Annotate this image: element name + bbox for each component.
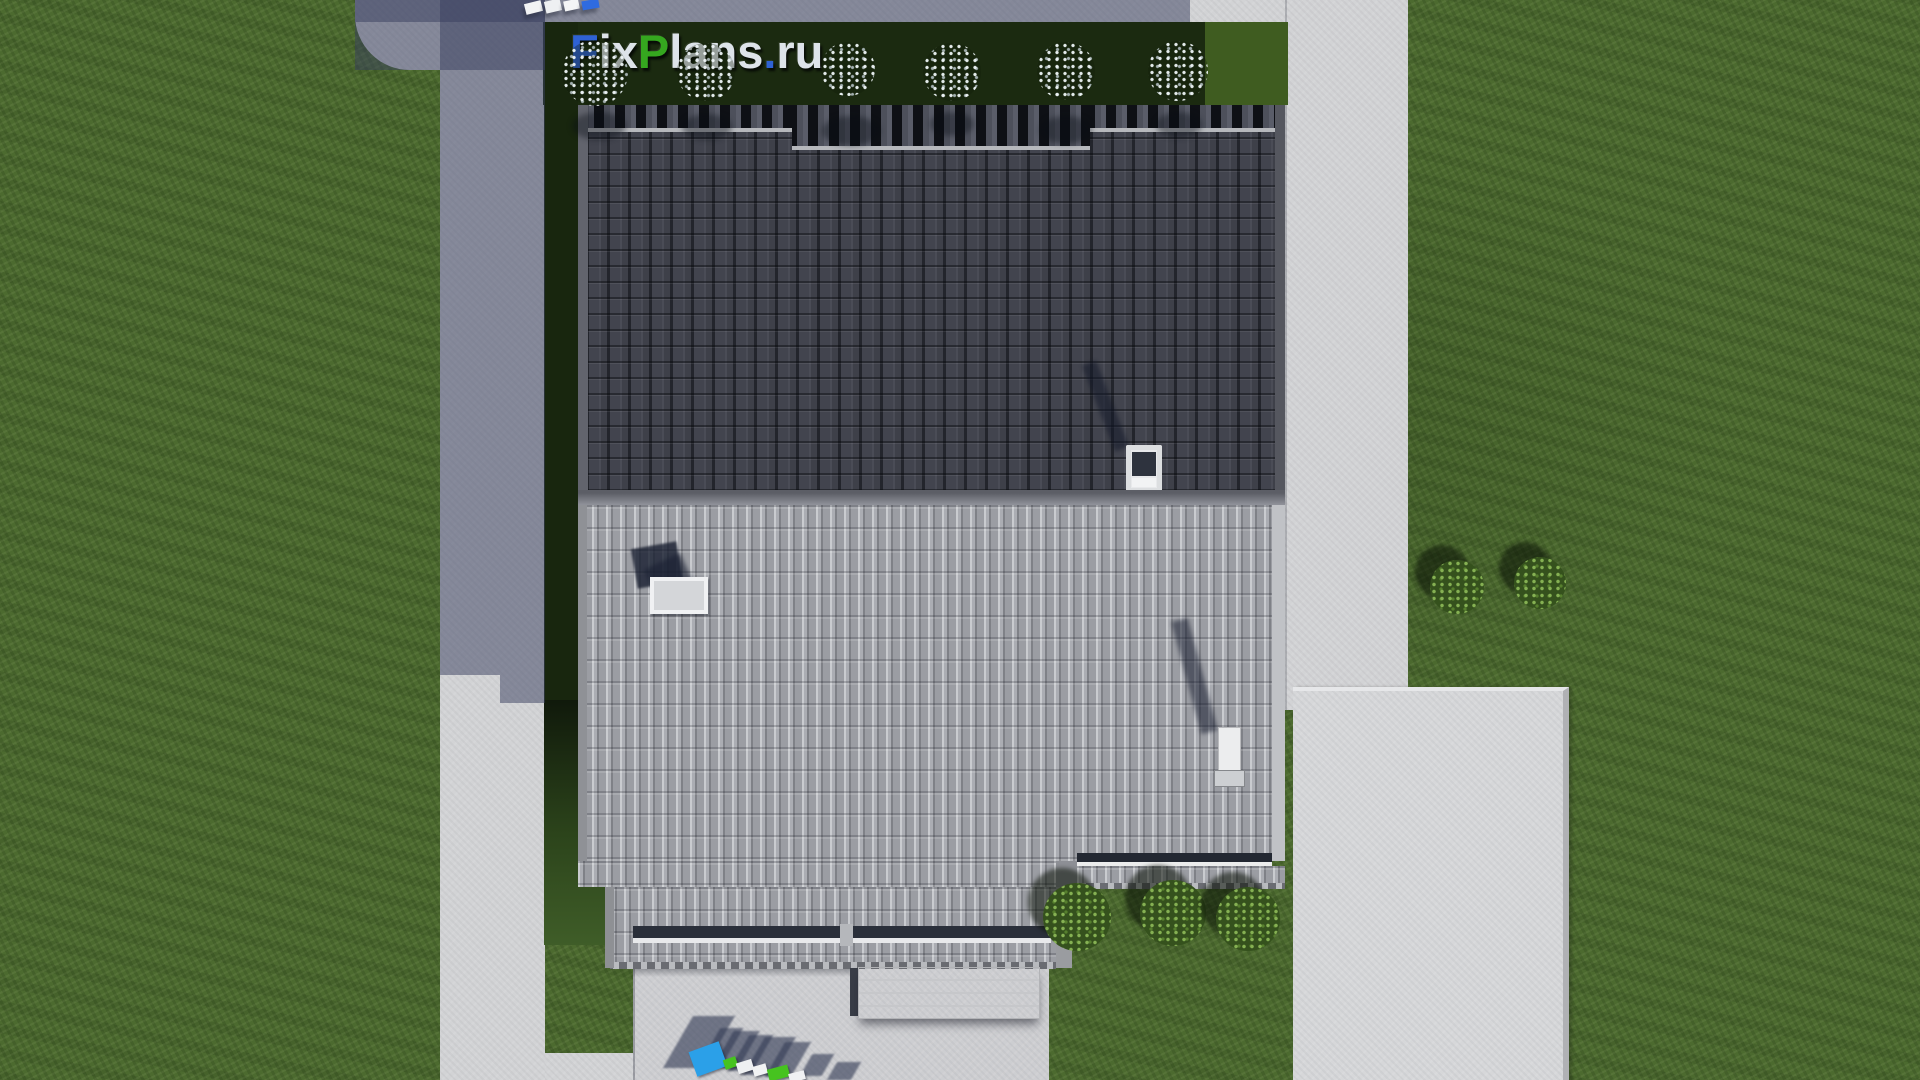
watermark-part-5: ru	[776, 25, 823, 78]
green-bush	[1430, 560, 1484, 614]
white-flower-bush	[677, 43, 735, 101]
roof-skylight-sill	[1132, 478, 1156, 487]
bush-roof-shadow	[1040, 116, 1092, 144]
roof-skylight	[1126, 445, 1162, 493]
watermark-part-4: .	[763, 25, 776, 78]
render-canvas: FixPlans.ru	[0, 0, 1920, 1080]
porch-left-fascia	[605, 887, 614, 968]
bush-roof-shadow	[682, 114, 732, 140]
white-flower-bush	[821, 42, 875, 96]
white-flower-bush	[1037, 42, 1095, 100]
driveway-eave-shade	[633, 968, 858, 977]
awning-gap	[850, 968, 858, 1016]
bush-roof-shadow	[822, 116, 880, 146]
bottom-left-walk	[545, 1053, 635, 1080]
bush-roof-shadow	[930, 112, 974, 136]
right-gutter-shade	[1077, 853, 1272, 862]
chimney-cap	[1214, 770, 1245, 787]
lower-roof	[578, 505, 1285, 861]
lower-roof-left-fascia	[578, 505, 587, 861]
entrance-awning	[858, 967, 1040, 1019]
upper-roof	[578, 105, 1285, 490]
green-bush	[1514, 557, 1566, 609]
bush-roof-shadow	[1156, 112, 1202, 138]
upper-roof-right-fascia	[1275, 105, 1285, 490]
green-bush	[1043, 883, 1111, 951]
patio-terrace	[1293, 687, 1569, 1080]
house-shadow-step	[500, 675, 545, 703]
white-flower-bush	[1148, 41, 1208, 101]
green-bush	[1216, 887, 1280, 951]
porch-roof-divider	[840, 924, 853, 946]
bush-roof-shadow	[572, 112, 626, 140]
roof-transition-strip	[578, 490, 1285, 505]
left-hedge-strip	[544, 22, 578, 782]
white-flower-bush	[562, 40, 628, 106]
watermark-part-2: P	[638, 25, 669, 78]
roof-window	[650, 577, 708, 614]
green-bush	[1140, 880, 1206, 946]
white-flower-bush	[923, 43, 981, 101]
lower-roof-mid-band	[578, 861, 1056, 887]
roof-skylight-glass	[1132, 452, 1156, 476]
upper-roof-left-fascia	[578, 105, 588, 490]
lower-roof-right-fascia	[1272, 505, 1285, 861]
top-hedge-lit-end	[1205, 22, 1288, 105]
house-shadow-left	[440, 0, 545, 675]
right-sidewalk	[1285, 0, 1408, 710]
